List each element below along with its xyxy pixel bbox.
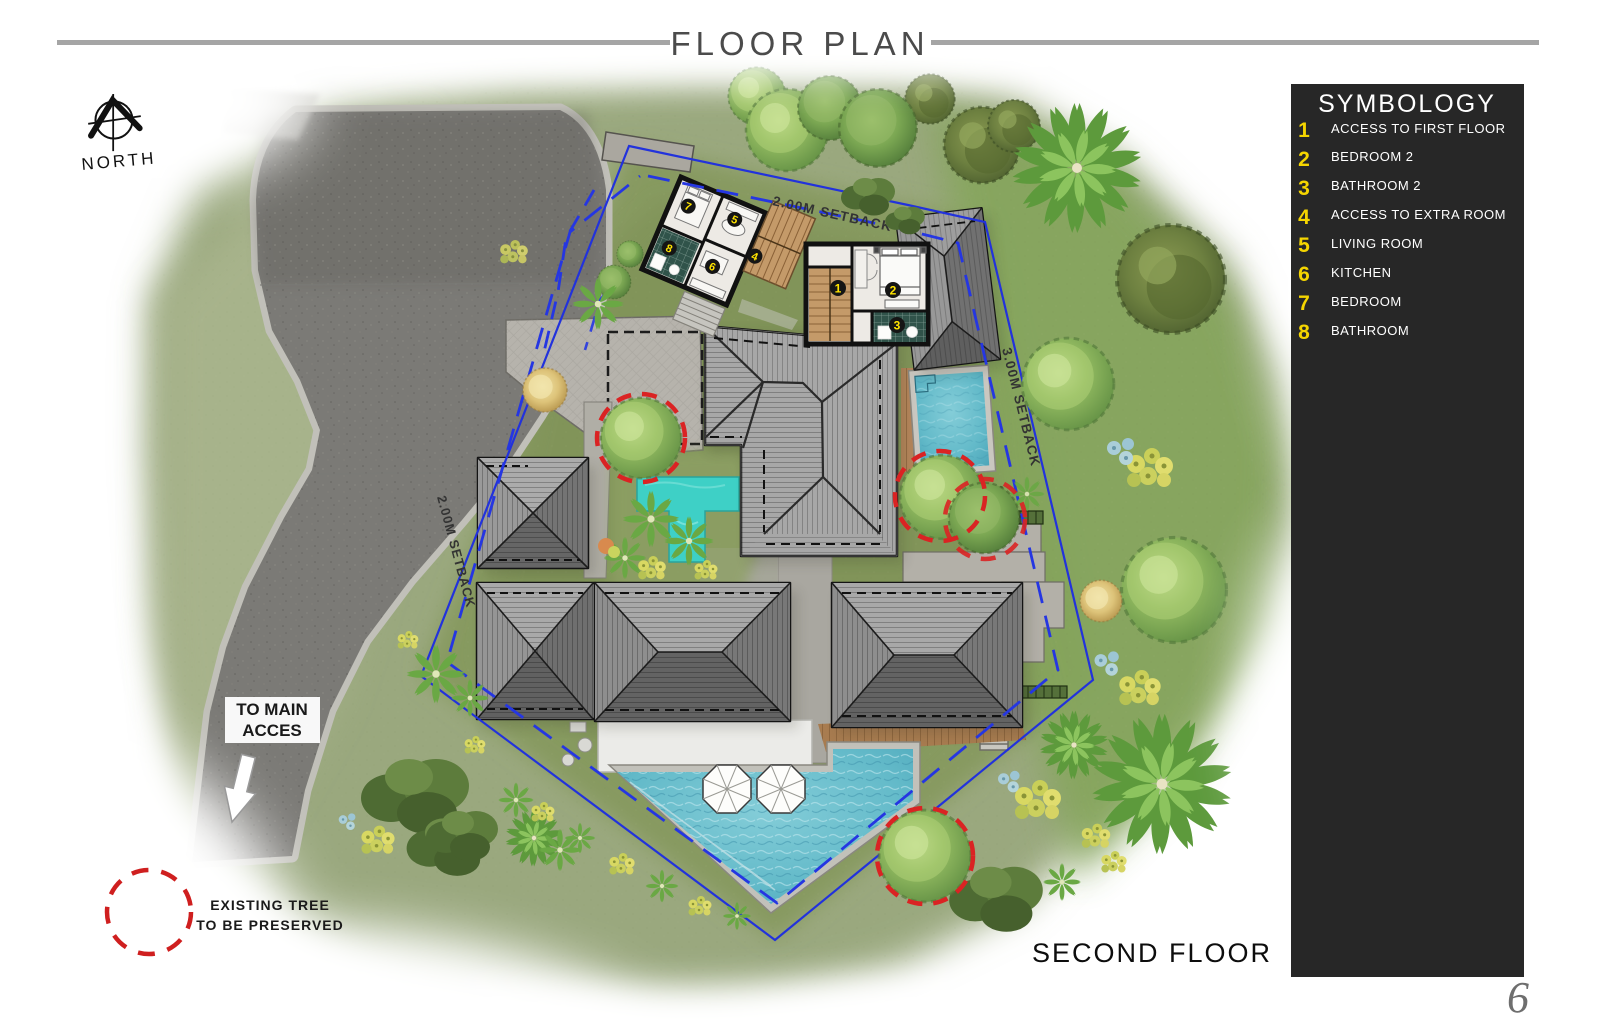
svg-text:ACCES: ACCES <box>242 721 302 740</box>
svg-text:BATHROOM: BATHROOM <box>1331 323 1409 338</box>
svg-text:BEDROOM: BEDROOM <box>1331 294 1402 309</box>
svg-text:1: 1 <box>835 282 842 296</box>
svg-text:SYMBOLOGY: SYMBOLOGY <box>1318 90 1496 118</box>
svg-text:TO BE PRESERVED: TO BE PRESERVED <box>196 917 344 933</box>
svg-text:BEDROOM 2: BEDROOM 2 <box>1331 149 1414 164</box>
svg-text:4: 4 <box>1298 206 1310 229</box>
svg-text:5: 5 <box>1298 234 1310 257</box>
svg-text:8: 8 <box>1298 321 1310 344</box>
svg-text:2: 2 <box>890 284 897 298</box>
svg-text:BATHROOM 2: BATHROOM 2 <box>1331 178 1421 193</box>
svg-text:6: 6 <box>1507 973 1529 1022</box>
svg-text:LIVING ROOM: LIVING ROOM <box>1331 236 1423 251</box>
svg-text:TO MAIN: TO MAIN <box>236 700 307 719</box>
svg-text:2: 2 <box>1298 148 1310 171</box>
svg-text:6: 6 <box>1298 263 1310 286</box>
svg-text:EXISTING TREE: EXISTING TREE <box>210 897 330 913</box>
svg-text:7: 7 <box>1298 292 1310 315</box>
svg-text:1: 1 <box>1298 119 1310 142</box>
svg-text:3: 3 <box>1298 177 1310 200</box>
svg-text:SECOND FLOOR: SECOND FLOOR <box>1032 938 1272 968</box>
svg-text:ACCESS TO EXTRA ROOM: ACCESS TO EXTRA ROOM <box>1331 207 1506 222</box>
svg-text:3: 3 <box>894 319 901 333</box>
svg-text:KITCHEN: KITCHEN <box>1331 265 1392 280</box>
svg-text:ACCESS TO FIRST FLOOR: ACCESS TO FIRST FLOOR <box>1331 121 1505 136</box>
svg-text:FLOOR PLAN: FLOOR PLAN <box>670 25 929 62</box>
